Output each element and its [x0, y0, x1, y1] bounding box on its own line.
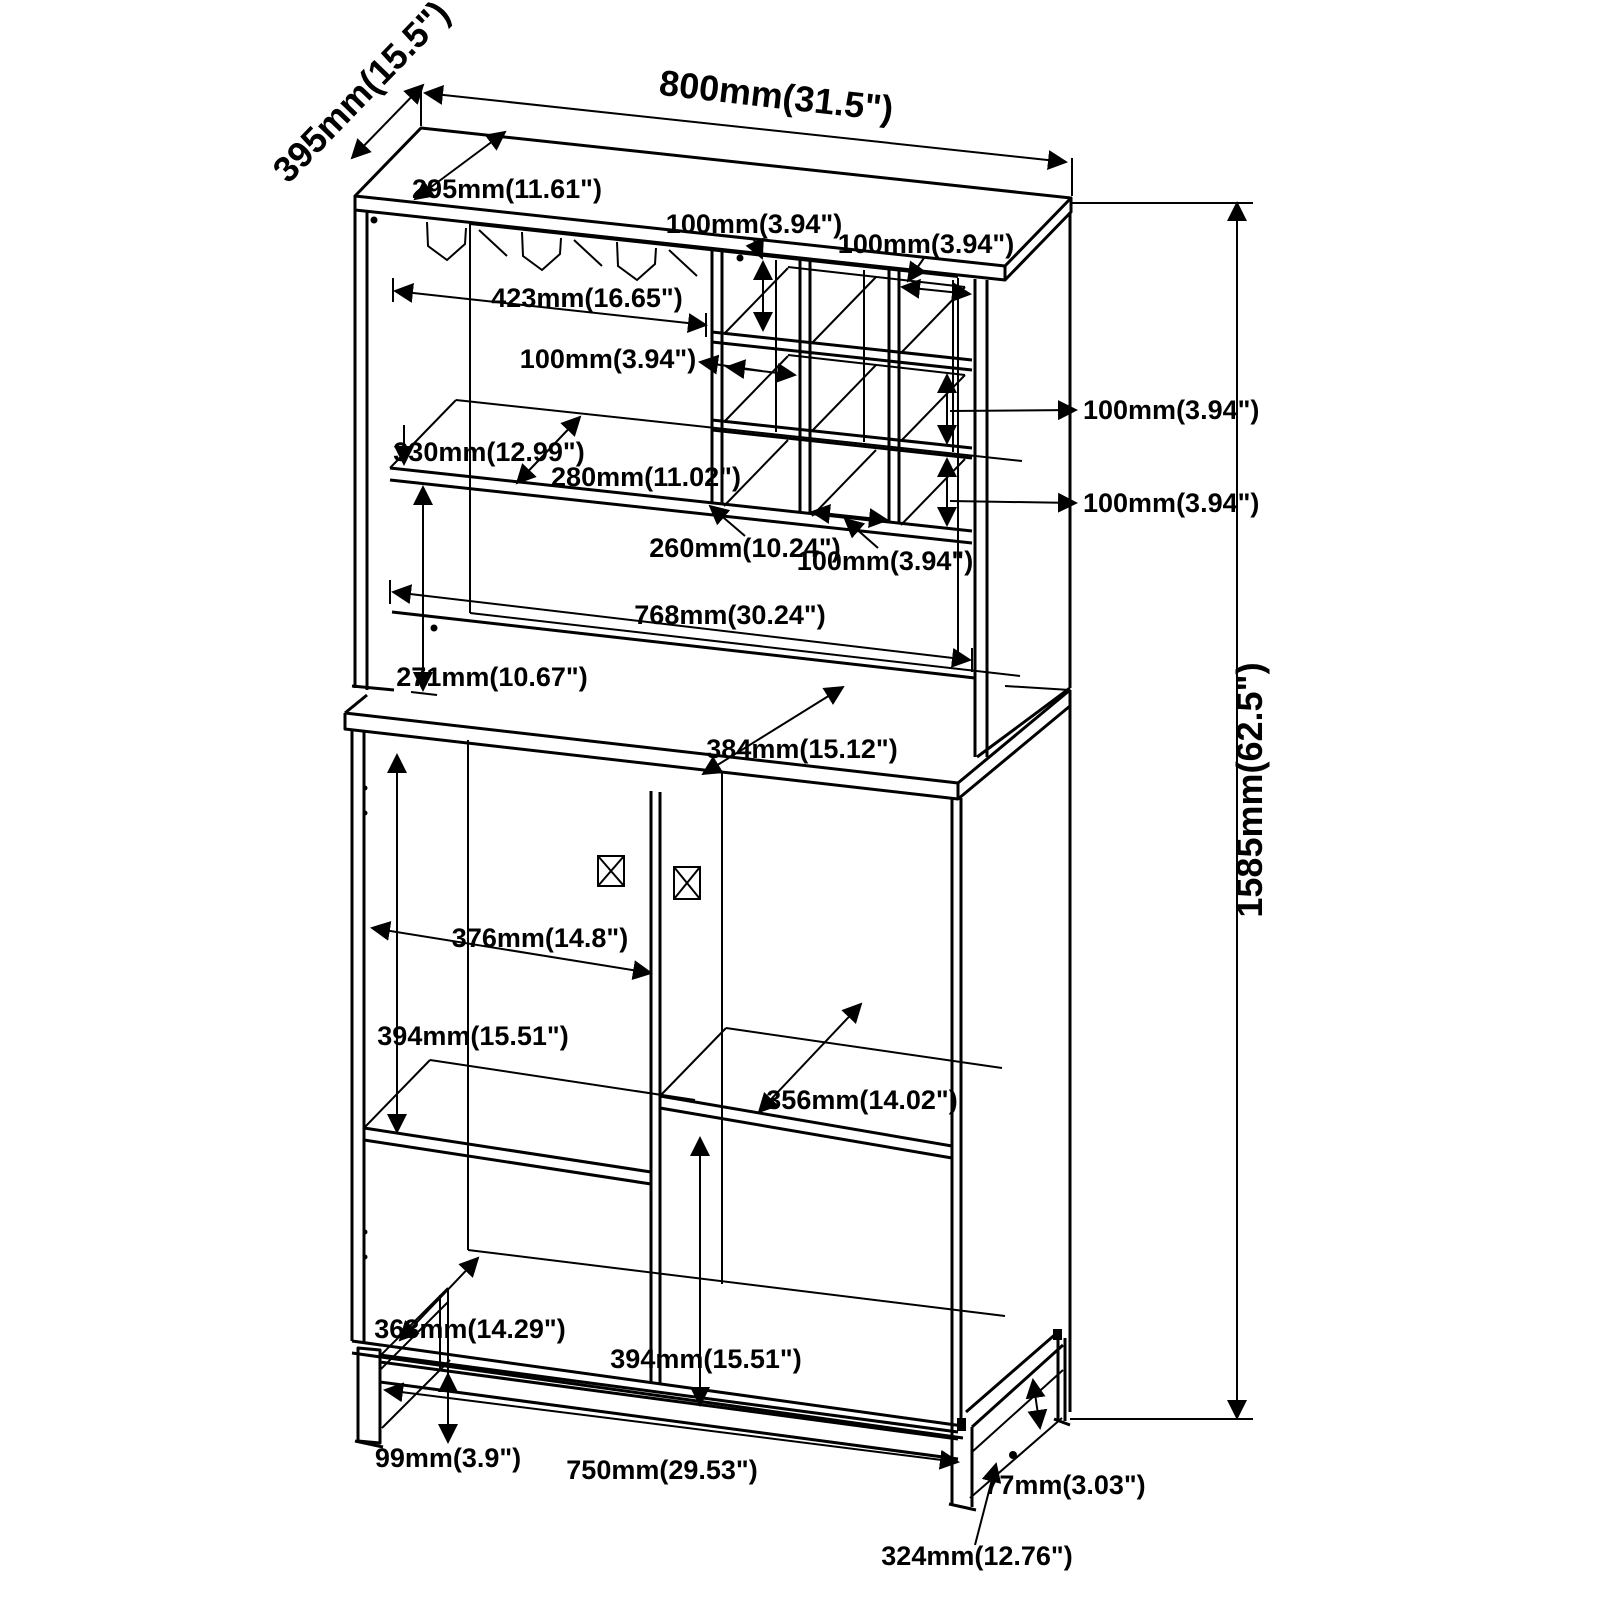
dim-top-width: 800mm(31.5") — [657, 62, 895, 129]
cam-lock-dots — [363, 217, 1018, 1460]
dim-base-width: 750mm(29.53") — [566, 1455, 757, 1485]
right-door-handle-icon — [674, 867, 700, 899]
dim-hutch-opening-height: 271mm(10.67") — [396, 662, 587, 692]
dim-top-depth: 395mm(15.5") — [265, 0, 458, 190]
dim-door-opening-width: 376mm(14.8") — [452, 923, 628, 953]
dim-cubby-row1-height: 100mm(3.94") — [666, 209, 842, 239]
dim-cubby-row2-height: 100mm(3.94") — [1083, 395, 1259, 425]
dim-shelf-depth: 280mm(11.02") — [551, 462, 741, 492]
stemware-rack — [427, 222, 697, 280]
dim-rack-opening-width: 423mm(16.65") — [491, 283, 682, 313]
dim-hutch-opening-width: 768mm(30.24") — [634, 600, 825, 630]
dim-base-rail-height: 77mm(3.03") — [984, 1470, 1145, 1500]
dimension-labels: 395mm(15.5") 800mm(31.5") 295mm(11.61") … — [265, 0, 1270, 1571]
dim-counter-depth: 384mm(15.12") — [706, 734, 897, 764]
left-door-handle-icon — [598, 856, 624, 886]
technical-drawing-page: 395mm(15.5") 800mm(31.5") 295mm(11.61") … — [0, 0, 1600, 1600]
dim-base-side-depth: 324mm(12.76") — [881, 1541, 1072, 1571]
dim-cubby-col-right-width: 100mm(3.94") — [838, 229, 1014, 259]
dim-cubby-col-mid-width: 100mm(3.94") — [520, 344, 696, 374]
dim-cubby-bottom-width: 100mm(3.94") — [797, 546, 973, 576]
door-handles — [598, 856, 700, 899]
dim-overall-height: 1585mm(62.5") — [1229, 662, 1270, 917]
wine-cubby-grid — [390, 249, 1022, 543]
dim-top-inner-depth: 295mm(11.61") — [412, 174, 602, 204]
dim-upper-compartment-height: 394mm(15.51") — [377, 1021, 568, 1051]
dim-right-shelf-depth: 356mm(14.02") — [766, 1085, 957, 1115]
dim-lower-compartment-depth: 363mm(14.29") — [374, 1314, 565, 1344]
cabinet-dimension-drawing: 395mm(15.5") 800mm(31.5") 295mm(11.61") … — [0, 0, 1600, 1600]
dim-lower-compartment-height: 394mm(15.51") — [610, 1344, 801, 1374]
dim-base-height: 99mm(3.9") — [375, 1443, 521, 1473]
dim-cubby-row3-height: 100mm(3.94") — [1083, 488, 1259, 518]
